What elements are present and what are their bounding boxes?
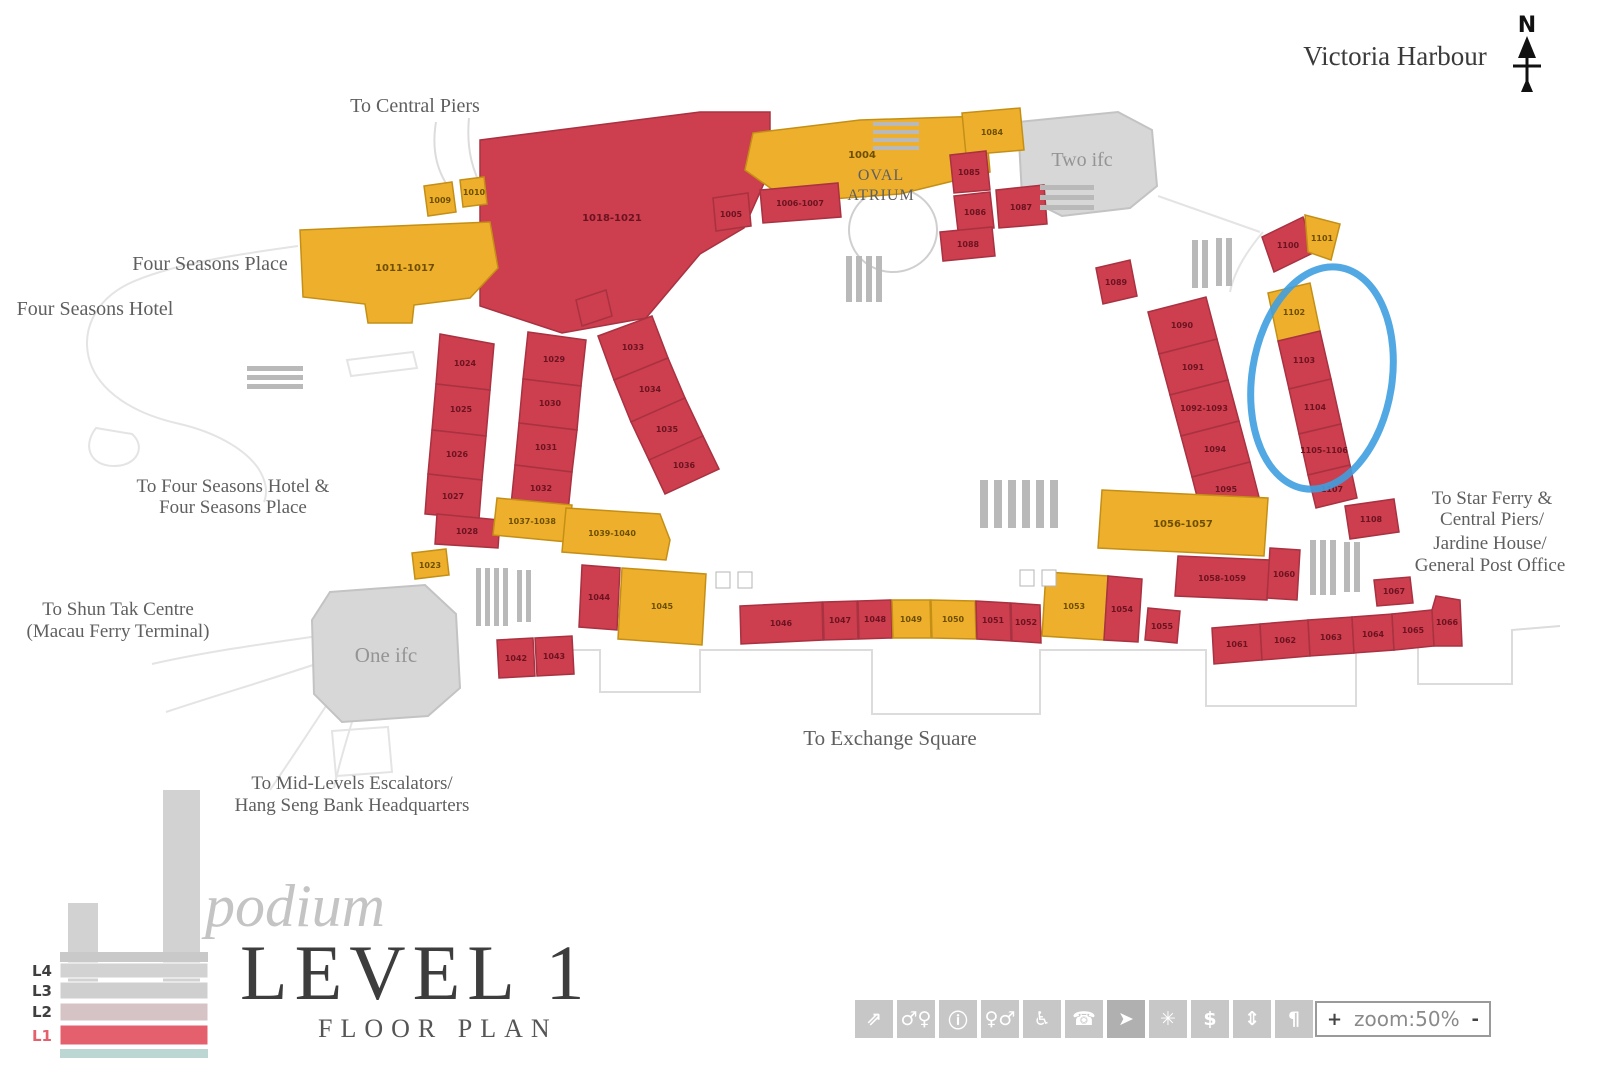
- shop-label: 1044: [588, 593, 611, 602]
- shop-label: 1030: [539, 399, 562, 408]
- shop-label: 1049: [900, 615, 923, 624]
- to-four-seasons-label: To Four Seasons Hotel &: [137, 476, 330, 497]
- shop-label: 1095: [1215, 485, 1238, 494]
- elevator-icon[interactable]: ⇕: [1233, 1000, 1271, 1038]
- shop-label: 1088: [957, 240, 980, 249]
- one-ifc-label: One ifc: [355, 643, 417, 667]
- shop-label: 1028: [456, 527, 479, 536]
- compass-north-icon: N: [1513, 13, 1541, 92]
- facilities-icon[interactable]: ¶: [1275, 1000, 1313, 1038]
- lift-icon: [716, 570, 1056, 588]
- shop-label: 1092-1093: [1180, 404, 1228, 413]
- page-title: LEVEL 1: [240, 928, 592, 1018]
- to-shun-tak-label: (Macau Ferry Terminal): [27, 621, 210, 642]
- to-mid-levels-label: To Mid-Levels Escalators/: [251, 773, 453, 794]
- shop-label: 1085: [958, 168, 981, 177]
- shop-label: 1089: [1105, 278, 1128, 287]
- shop-label: 1042: [505, 654, 527, 663]
- first-aid-icon[interactable]: ✳: [1149, 1000, 1187, 1038]
- four-seasons-hotel-label: Four Seasons Hotel: [17, 298, 174, 320]
- to-shun-tak-label: To Shun Tak Centre: [42, 599, 194, 620]
- level-slab-l3[interactable]: [60, 982, 208, 999]
- level-slab-l2[interactable]: [60, 1003, 208, 1021]
- level-label-l3[interactable]: L3: [32, 982, 52, 1000]
- shop-label: 1023: [419, 561, 441, 570]
- accessible-icon[interactable]: ♿: [1023, 1000, 1061, 1038]
- shop-label: 1066: [1436, 618, 1459, 627]
- to-star-ferry-label: Jardine House/: [1433, 533, 1547, 554]
- shop-label: 1086: [964, 208, 987, 217]
- shop-label: 1048: [864, 615, 887, 624]
- shop-label: 1046: [770, 619, 793, 628]
- escalator-icon[interactable]: ⇗: [855, 1000, 893, 1038]
- info-icon[interactable]: ⓘ: [939, 1000, 977, 1038]
- level-slab-base: [60, 1049, 208, 1058]
- to-central-piers-label: To Central Piers: [350, 95, 480, 117]
- shop-label: 1104: [1304, 403, 1327, 412]
- direction-pointer-icon[interactable]: ➤: [1107, 1000, 1145, 1038]
- shop-label: 1039-1040: [588, 529, 636, 538]
- escalator-icon: [1310, 540, 1360, 595]
- shop-label: 1053: [1063, 602, 1085, 611]
- level-label-l4[interactable]: L4: [32, 962, 52, 980]
- escalator-icon: [980, 480, 1058, 528]
- shop-label: 1036: [673, 461, 696, 470]
- to-star-ferry-label: General Post Office: [1415, 555, 1566, 576]
- shop-label: 1031: [535, 443, 558, 452]
- shop-label: 1045: [651, 602, 674, 611]
- escalator-icon: [476, 568, 531, 626]
- victoria-harbour-label: Victoria Harbour: [1303, 41, 1487, 71]
- shop-label: 1009: [429, 196, 452, 205]
- telephone-icon[interactable]: ☎: [1065, 1000, 1103, 1038]
- shop-label: 1018-1021: [582, 213, 642, 224]
- shop-label: 1090: [1171, 321, 1194, 330]
- shop-label: 1052: [1015, 618, 1037, 627]
- level-legend: L4 L3 L2 L1: [32, 790, 208, 1058]
- level-label-l1[interactable]: L1: [32, 1027, 52, 1045]
- shop-label: 1004: [848, 150, 876, 161]
- shop-label: 1011-1017: [375, 263, 435, 274]
- oval-atrium-label: OVAL: [858, 167, 904, 184]
- floor-plan-page: 1018-1021 1011-1017 1009 1010 1004 1005 …: [0, 0, 1600, 1075]
- shop-label: 1091: [1182, 363, 1205, 372]
- zoom-out-button[interactable]: -: [1472, 1009, 1479, 1030]
- shop-label: 1005: [720, 210, 743, 219]
- to-mid-levels-label: Hang Seng Bank Headquarters: [235, 795, 470, 816]
- shop-label: 1050: [942, 615, 965, 624]
- shop-label: 1058-1059: [1198, 574, 1246, 583]
- shop-label: 1102: [1283, 308, 1305, 317]
- shop-label: 1084: [981, 128, 1004, 137]
- shop-label: 1035: [656, 425, 679, 434]
- zoom-control: + zoom:50% -: [1315, 1001, 1491, 1037]
- shop-label: 1033: [622, 343, 644, 352]
- shop-label: 1063: [1320, 633, 1342, 642]
- shop-label: 1065: [1402, 626, 1425, 635]
- shop-label: 1032: [530, 484, 552, 493]
- shop-label: 1064: [1362, 630, 1385, 639]
- shop-label: 1056-1057: [1153, 519, 1213, 530]
- shop-label: 1067: [1383, 587, 1405, 596]
- level-label-l2[interactable]: L2: [32, 1003, 52, 1021]
- shop-label: 1100: [1277, 241, 1300, 250]
- escalator-icon: [247, 366, 303, 389]
- shop-label: 1010: [463, 188, 486, 197]
- escalator-icon: [1192, 238, 1232, 288]
- shop-label: 1025: [450, 405, 473, 414]
- escalator-icon: [1040, 185, 1094, 210]
- shop-label: 1108: [1360, 515, 1383, 524]
- atm-icon[interactable]: $: [1191, 1000, 1229, 1038]
- restroom-icon[interactable]: ♂♀: [897, 1000, 935, 1038]
- shop-label: 1034: [639, 385, 662, 394]
- zoom-level-label: zoom:50%: [1354, 1007, 1460, 1031]
- level-slab-l4[interactable]: [60, 963, 208, 978]
- shop-label: 1047: [829, 616, 851, 625]
- shop-label: 1037-1038: [508, 517, 556, 526]
- shop-label: 1006-1007: [776, 199, 824, 208]
- shop-label: 1027: [442, 492, 464, 501]
- to-exchange-square-label: To Exchange Square: [803, 726, 976, 750]
- shop-label: 1043: [543, 652, 565, 661]
- four-seasons-place-label: Four Seasons Place: [132, 253, 288, 275]
- to-star-ferry-label: To Star Ferry &: [1432, 488, 1553, 509]
- to-star-ferry-label: Central Piers/: [1440, 509, 1545, 530]
- compass-n-label: N: [1518, 13, 1536, 38]
- shop-label: 1051: [982, 616, 1005, 625]
- to-four-seasons-label: Four Seasons Place: [159, 497, 307, 518]
- zoom-in-button[interactable]: +: [1327, 1009, 1342, 1030]
- shop-label: 1101: [1311, 234, 1334, 243]
- page-subtitle: FLOOR PLAN: [318, 1014, 558, 1044]
- shop-label: 1024: [454, 359, 477, 368]
- shop-label: 1029: [543, 355, 566, 364]
- shop-label: 1060: [1273, 570, 1296, 579]
- shop-label: 1026: [446, 450, 469, 459]
- shop-label: 1054: [1111, 605, 1134, 614]
- shop-label: 1103: [1293, 356, 1315, 365]
- legend-toolbar: ⇗ ♂♀ ⓘ ♀♂ ♿ ☎ ➤ ✳ $ ⇕ ¶: [855, 1000, 1313, 1038]
- shop-label: 1094: [1204, 445, 1227, 454]
- oval-atrium-label: ATRIUM: [847, 187, 914, 204]
- two-ifc-label: Two ifc: [1051, 149, 1112, 171]
- washroom-icon[interactable]: ♀♂: [981, 1000, 1019, 1038]
- level-slab-l1[interactable]: [60, 1025, 208, 1045]
- shop-label: 1062: [1274, 636, 1296, 645]
- shop-label: 1087: [1010, 203, 1032, 212]
- shop-label: 1061: [1226, 640, 1249, 649]
- shop-label: 1055: [1151, 622, 1174, 631]
- shop-label: 1105-1106: [1300, 446, 1348, 455]
- podium-roof: [60, 952, 208, 962]
